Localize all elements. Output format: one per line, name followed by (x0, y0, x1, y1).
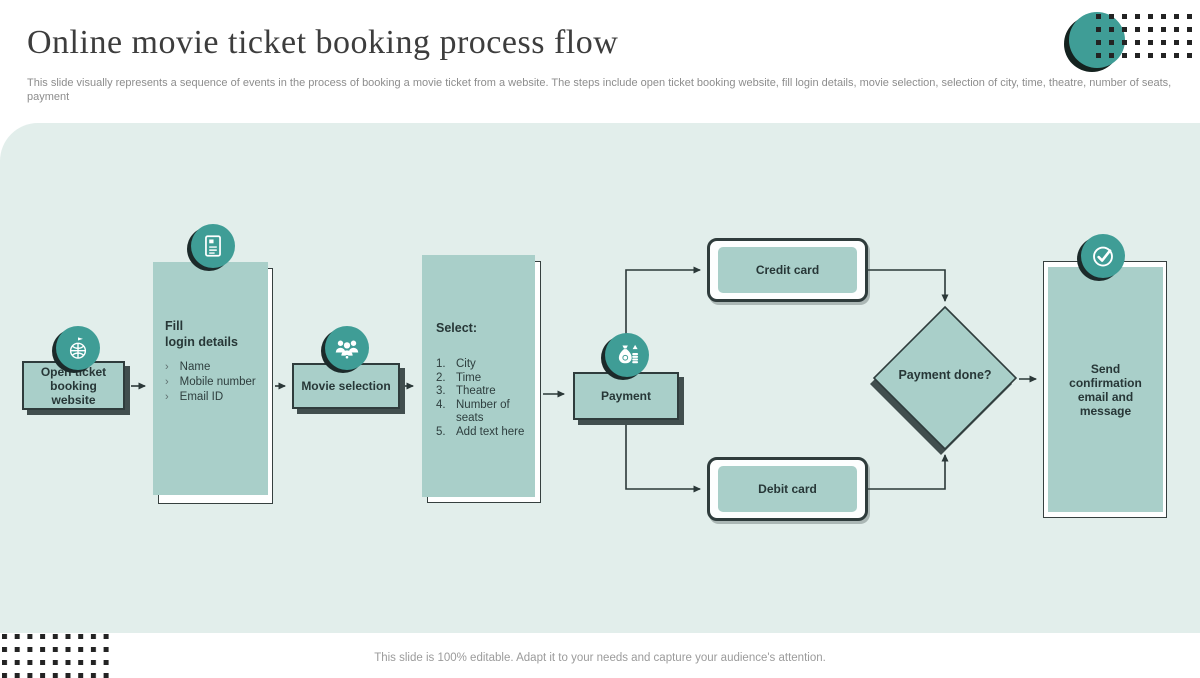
list-item: Number of seats (436, 399, 527, 426)
editable-note: This slide is 100% editable. Adapt it to… (0, 652, 1200, 664)
check-circle-icon (1090, 243, 1116, 269)
list-item: Time (436, 372, 527, 386)
slide: Online movie ticket booking process flow… (0, 0, 1200, 675)
step-select[interactable]: Select: City Time Theatre Number of seat… (422, 255, 535, 497)
step-payment-label: Payment (601, 389, 651, 403)
step-fill-login-title-2: login details (165, 334, 258, 350)
step-confirmation-label: Send confirmation email and message (1056, 362, 1155, 418)
step-open-website-label: Open ticket booking website (30, 365, 117, 407)
list-item: Add text here (436, 426, 527, 440)
select-options-list: City Time Theatre Number of seats Add te… (436, 358, 527, 439)
step-fill-login-badge (191, 224, 235, 268)
step-open-website-badge (56, 326, 100, 370)
step-payment-badge (605, 333, 649, 377)
step-movie-selection-label: Movie selection (301, 379, 390, 393)
decision-payment-done[interactable]: Payment done? (880, 368, 1010, 382)
list-item: City (436, 358, 527, 372)
list-item: Theatre (436, 385, 527, 399)
option-debit-card[interactable]: Debit card (707, 457, 868, 521)
option-debit-card-label: Debit card (758, 482, 817, 496)
step-fill-login-title-1: Fill (165, 318, 258, 334)
list-item: Email ID (165, 390, 258, 405)
globe-flag-icon (65, 335, 91, 361)
step-movie-selection-badge (325, 326, 369, 370)
list-item: Name (165, 360, 258, 375)
option-credit-card-label: Credit card (756, 263, 819, 277)
option-credit-card[interactable]: Credit card (707, 238, 868, 302)
step-payment[interactable]: Payment (573, 372, 679, 420)
audience-group-icon (334, 335, 360, 361)
registration-form-icon (200, 233, 226, 259)
step-fill-login[interactable]: Fill login details Name Mobile number Em… (153, 262, 268, 495)
step-select-title: Select: (436, 320, 527, 336)
list-item: Mobile number (165, 375, 258, 390)
step-confirmation-badge (1081, 234, 1125, 278)
money-bag-icon (614, 342, 640, 368)
login-details-list: Name Mobile number Email ID (165, 360, 258, 405)
step-confirmation[interactable]: Send confirmation email and message (1048, 267, 1163, 512)
